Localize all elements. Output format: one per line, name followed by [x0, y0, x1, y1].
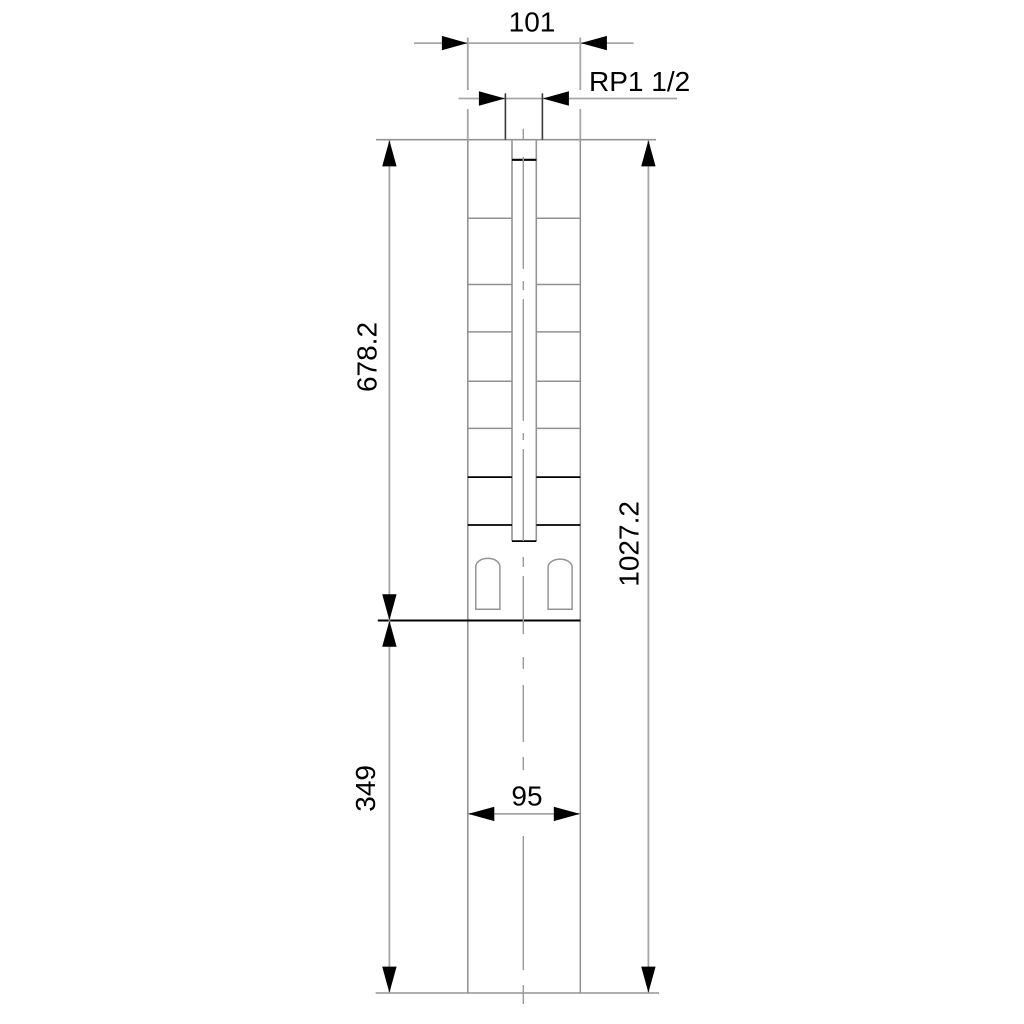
svg-text:101: 101	[509, 7, 556, 38]
svg-text:349: 349	[350, 765, 381, 812]
svg-text:95: 95	[511, 781, 542, 812]
svg-text:RP1 1/2: RP1 1/2	[589, 66, 690, 97]
svg-text:678.2: 678.2	[352, 322, 383, 392]
svg-text:1027.2: 1027.2	[614, 501, 645, 587]
